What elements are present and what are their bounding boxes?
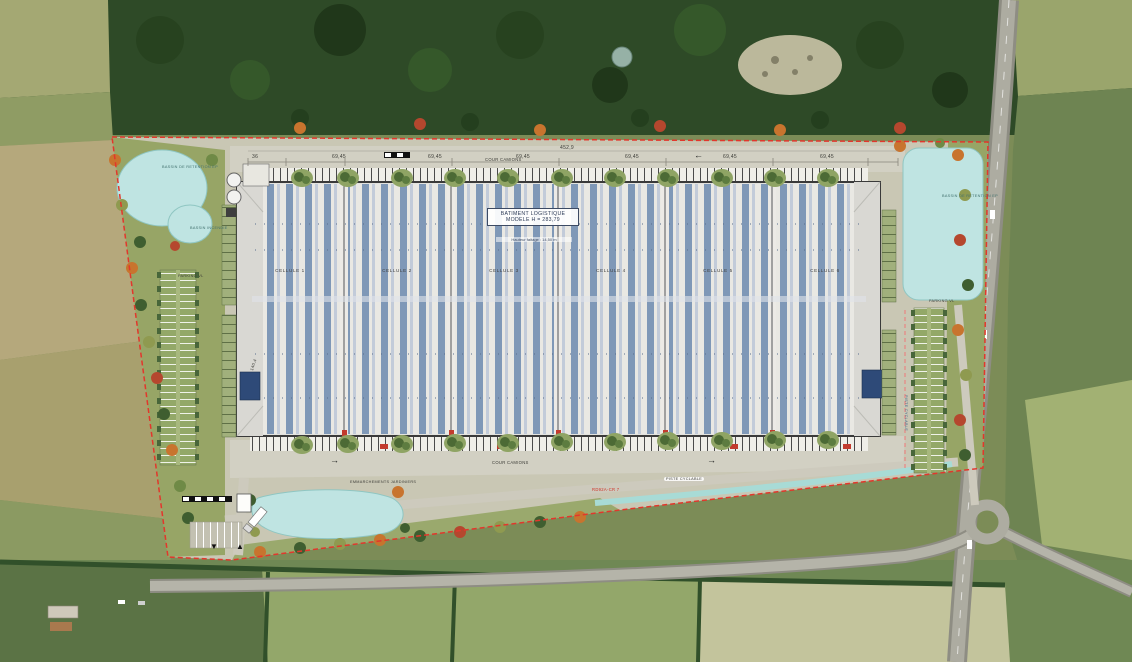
dim-bay-6: 69,45 — [820, 155, 834, 161]
farm-building — [50, 622, 72, 631]
entrance-marker-down: ▼ — [210, 543, 218, 551]
entrance-marker-up: ▲ — [236, 543, 244, 551]
solar-panels — [862, 370, 882, 398]
solar-panels — [240, 372, 260, 400]
pond-northwest-small-label: BASSIN INCENDIE — [190, 226, 228, 230]
annex-west-south — [222, 315, 236, 437]
car — [138, 601, 145, 605]
car — [990, 210, 995, 219]
dim-bay-1: 69,45 — [332, 155, 346, 161]
dim-total: 452,9 — [560, 146, 574, 152]
cycle-path-label-vertical: PISTE CYCLABLE — [904, 395, 908, 431]
cycle-path-label: PISTE CYCLABLE — [664, 477, 704, 481]
gatehouse — [237, 494, 251, 512]
steps-label: EMMARCHEMENTS JARDINIERS — [350, 480, 416, 484]
dim-left-offset: 36 — [252, 155, 258, 161]
scale-bar-bottom — [182, 496, 232, 502]
car — [967, 540, 972, 549]
traffic-arrow-east-1: → — [330, 456, 339, 465]
dim-bay-4: 69,45 — [625, 155, 639, 161]
aerial-background — [0, 0, 1132, 662]
technical-rooms — [243, 164, 269, 186]
traffic-arrow-west: ← — [694, 151, 703, 160]
traffic-arrow-east-2: → — [707, 456, 716, 465]
annex-west-north — [222, 205, 236, 305]
building-title-box: BATIMENT LOGISTIQUE MODELE H = 283,79 — [487, 208, 579, 226]
south-court-label: COUR CAMIONS — [492, 461, 529, 466]
sprinkler-tank — [227, 173, 241, 187]
cell-label-1: CELLULE 1 — [275, 268, 305, 273]
north-court-label: COUR CAMIONS — [485, 158, 522, 163]
parking-west-label: PARKING VL — [178, 274, 204, 278]
pond-east — [903, 148, 983, 300]
farm-building — [48, 606, 78, 618]
road-ref-label: RD92A-CR 7 — [592, 488, 619, 493]
annex-east-south — [882, 330, 896, 435]
cell-label-6: CELLULE 6 — [810, 268, 840, 273]
dim-bay-5: 69,45 — [723, 155, 737, 161]
cell-label-2: CELLULE 2 — [382, 268, 412, 273]
sprinkler-tank — [227, 190, 241, 204]
dim-bay-2: 69,45 — [428, 155, 442, 161]
forest-pond — [612, 47, 632, 67]
pond-southwest — [252, 490, 403, 539]
pond-northwest-small — [168, 205, 212, 243]
pump-house — [226, 208, 236, 217]
forest-clearing — [738, 35, 842, 95]
pond-east-label: BASSIN DE RETENTION EP — [942, 194, 998, 198]
scale-bar-top — [384, 152, 410, 158]
cell-label-4: CELLULE 4 — [596, 268, 626, 273]
building-subtitle: Hauteur faitage : 14,50 m — [496, 237, 572, 242]
building-title-line2: MODELE H = 283,79 — [488, 217, 578, 223]
aerial-site-plan: 36 69,45 69,45 69,45 69,45 69,45 69,45 4… — [0, 0, 1132, 662]
annex-east-north — [882, 210, 896, 302]
cell-label-3: CELLULE 3 — [489, 268, 519, 273]
pond-northwest-label: BASSIN DE RETENTION EP — [162, 165, 218, 169]
car — [118, 600, 125, 604]
cell-label-5: CELLULE 5 — [703, 268, 733, 273]
parking-east-label: PARKING VL — [929, 299, 955, 303]
